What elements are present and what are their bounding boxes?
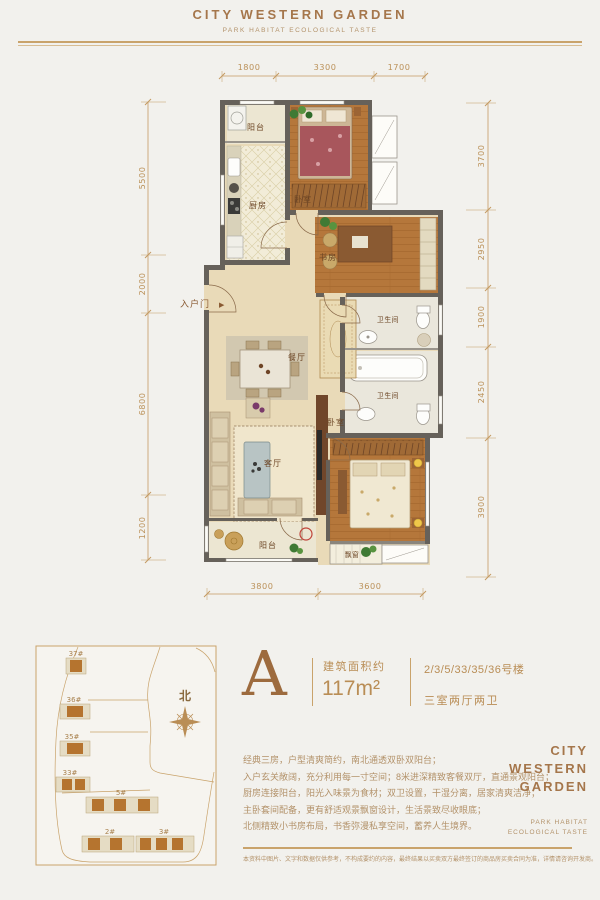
- hallway-rug: [320, 300, 356, 378]
- room-bedroom-master: [330, 438, 425, 541]
- bldg-label-3: 3#: [159, 828, 169, 836]
- brand-line-2: WESTERN: [508, 760, 588, 778]
- area-label: 建筑面积约: [323, 658, 386, 674]
- dim-bottom-0: 3800: [251, 581, 274, 591]
- bldg-label-35: 35#: [65, 733, 80, 741]
- bldg-label-5: 5#: [116, 789, 126, 797]
- bldg-label-37: 37#: [69, 650, 84, 658]
- room-label-bath-upper: 卫生间: [377, 315, 399, 324]
- area-value: 117m²: [322, 677, 380, 701]
- page-title: CITY WESTERN GARDEN: [0, 7, 600, 22]
- north-label: 北: [179, 688, 191, 703]
- entrance-arrow-icon: ▶: [219, 301, 225, 309]
- dim-left-0: 5500: [137, 167, 147, 190]
- room-label-bedroom-master: 卧室: [327, 417, 345, 427]
- dim-left-1: 2000: [137, 273, 147, 296]
- unit-type-letter: A: [242, 641, 287, 707]
- room-label-living: 客厅: [264, 458, 282, 468]
- room-label-dining: 餐厅: [288, 353, 306, 362]
- dim-left-2: 6800: [137, 393, 147, 416]
- dim-right-3: 2450: [476, 381, 486, 404]
- room-label-bedroom-north: 卧室: [294, 194, 312, 204]
- bldg-label-36: 36#: [67, 696, 82, 704]
- brand-line-1: CITY: [508, 742, 588, 760]
- disclaimer-text: 本资料中图片、文字和数据仅供参考，不构成要约的内容，最终结果以买卖双方最终签订的…: [243, 854, 597, 863]
- dim-left-3: 1200: [137, 517, 147, 540]
- room-label-bath-lower: 卫生间: [377, 391, 399, 400]
- dim-top-1: 3300: [314, 62, 337, 72]
- unit-buildings: 2/3/5/33/35/36号楼: [424, 661, 524, 677]
- brand-tagline-1: PARK HABITAT: [508, 818, 588, 828]
- dim-top-0: 1800: [238, 62, 261, 72]
- unit-divider-1: [312, 658, 313, 706]
- room-label-bay-window: 飘窗: [345, 550, 360, 559]
- brand-block: CITY WESTERN GARDEN PARK HABITAT ECOLOGI…: [508, 742, 588, 838]
- room-label-study: 书房: [319, 252, 337, 262]
- unit-layout: 三室两厅两卫: [424, 692, 499, 708]
- disclaimer-rule: [243, 847, 572, 849]
- dim-right-1: 2950: [476, 238, 486, 261]
- bldg-label-33: 33#: [63, 769, 78, 777]
- header-rule-top: [18, 41, 582, 43]
- dim-right-2: 1900: [476, 306, 486, 329]
- room-label-balcony-top: 阳台: [247, 122, 265, 132]
- brand-tagline-2: ECOLOGICAL TASTE: [508, 828, 588, 838]
- bldg-label-2: 2#: [105, 828, 115, 836]
- dim-right-4: 3900: [476, 496, 486, 519]
- dim-right-0: 3700: [476, 145, 486, 168]
- room-label-balcony-bottom: 阳台: [259, 540, 277, 550]
- unit-divider-2: [410, 658, 411, 706]
- room-label-kitchen: 厨房: [249, 200, 267, 210]
- floor-plan: 阳台 厨房 卧室 书房 卫生间 卫生间 餐厅 客厅 卧室 阳台 飘窗 入户门 ▶…: [125, 55, 515, 615]
- page-subtitle: PARK HABITAT ECOLOGICAL TASTE: [0, 27, 600, 34]
- site-map: 北 37# 36# 35# 33# 5# 2# 3#: [28, 633, 226, 883]
- brand-line-3: GARDEN: [508, 778, 588, 796]
- dim-bottom-1: 3600: [359, 581, 382, 591]
- room-dining: [226, 336, 308, 400]
- entrance-label: 入户门: [180, 298, 210, 310]
- header-rule-bottom: [18, 45, 582, 46]
- dim-top-2: 1700: [388, 62, 411, 72]
